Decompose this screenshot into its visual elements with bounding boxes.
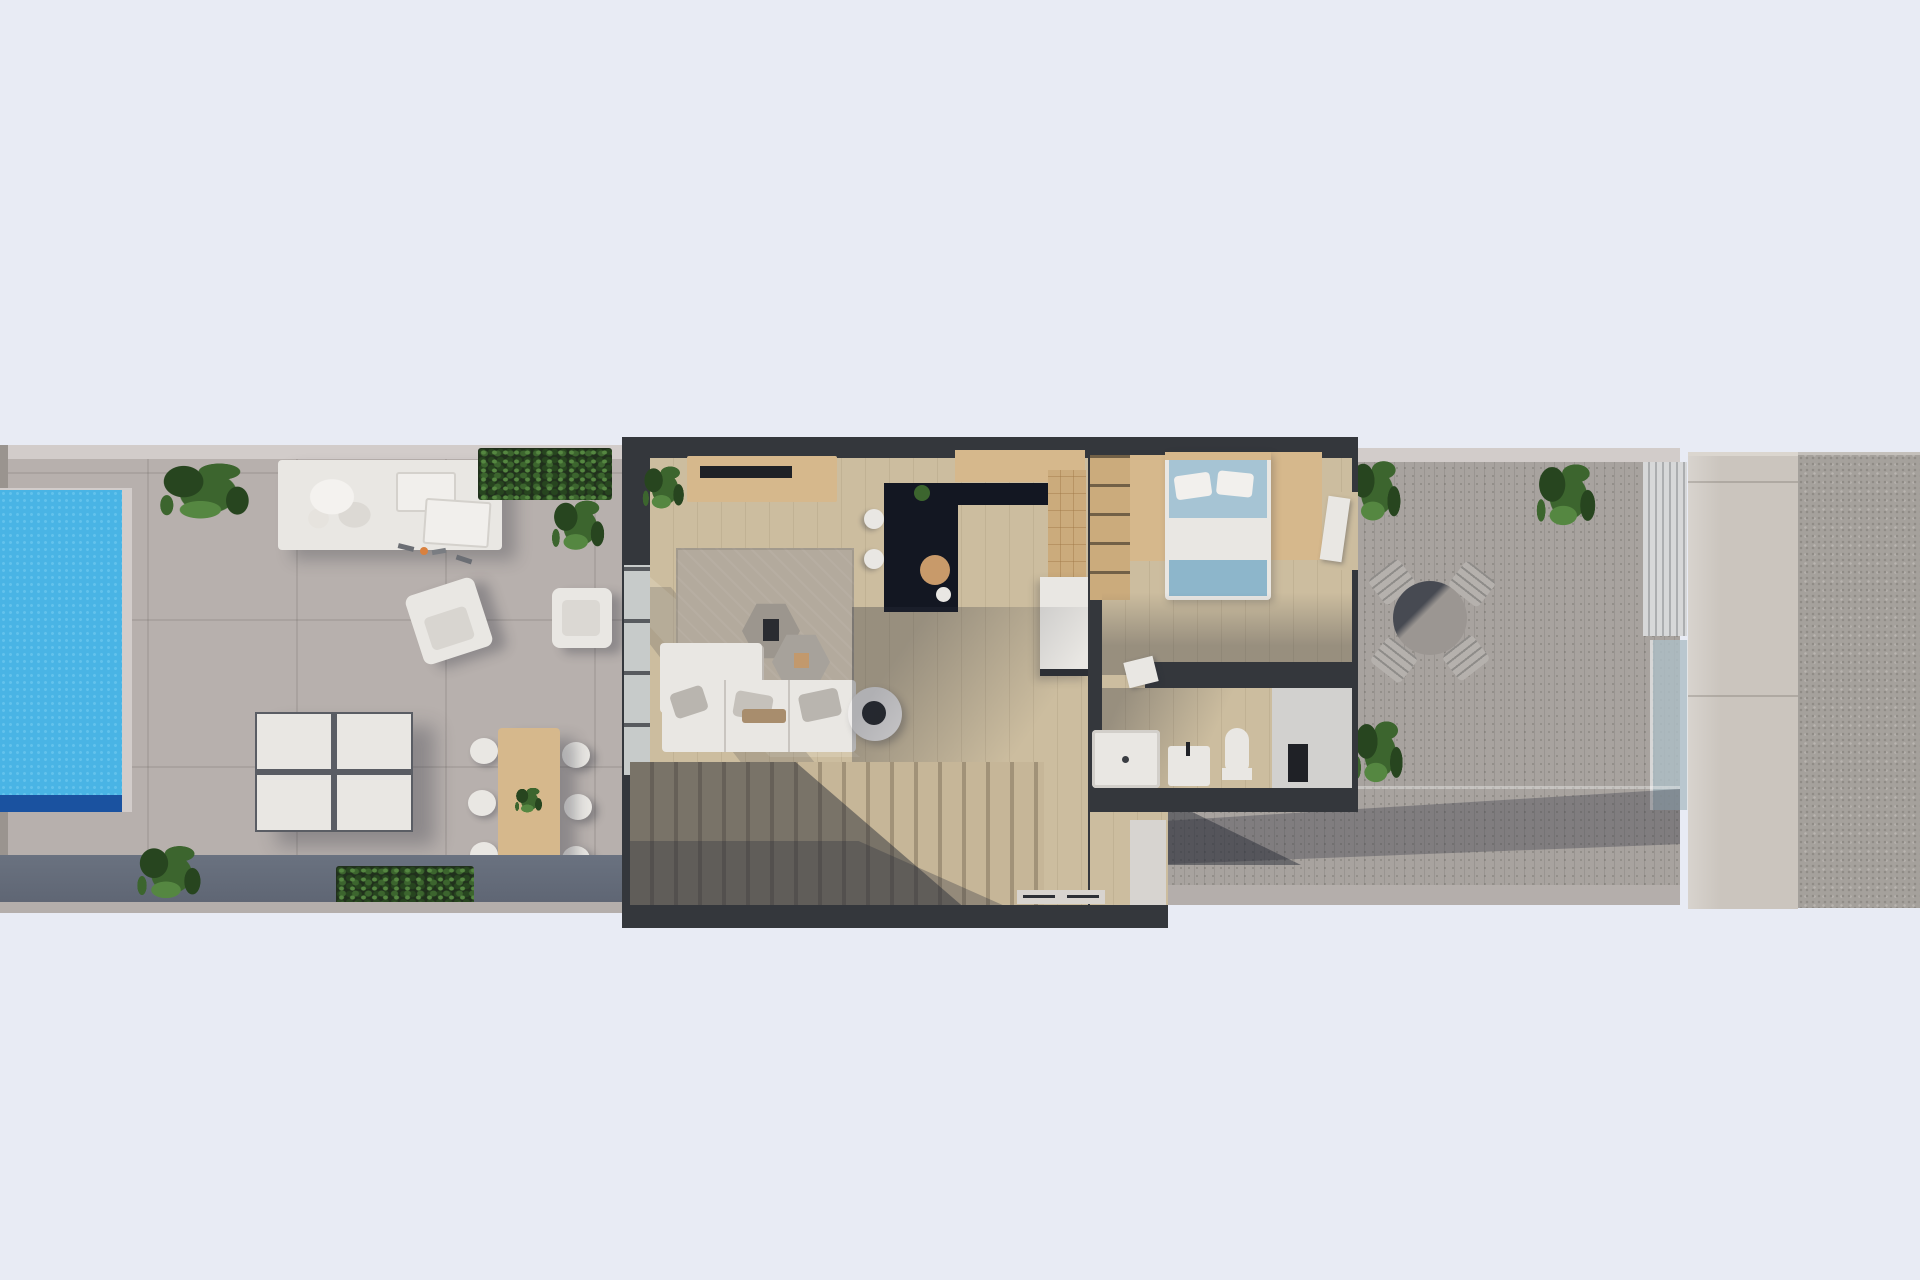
terrace-plant-2	[130, 838, 210, 910]
house-main	[622, 437, 1168, 928]
potted-plant	[546, 493, 612, 561]
staircase	[630, 762, 1044, 905]
scatter-item-2	[432, 548, 447, 555]
kitchen-island	[884, 483, 958, 612]
bistro-table	[1393, 581, 1467, 655]
wardrobe-right	[1270, 452, 1322, 560]
glass-balustrade-lower	[1650, 640, 1690, 810]
bed-headboard	[1165, 452, 1271, 460]
sofa-throw	[742, 709, 786, 723]
lounger-2	[337, 714, 411, 769]
pool-deep-edge	[0, 795, 122, 812]
pool-terrace	[0, 445, 622, 913]
bed-pillow-1	[1174, 472, 1213, 501]
partition-wall	[1145, 662, 1352, 688]
gravel-strip	[1798, 452, 1920, 908]
dining-chair-4	[562, 742, 590, 768]
indoor-plant	[638, 460, 690, 518]
open-white-door	[1040, 577, 1088, 676]
outdoor-chair	[552, 588, 612, 648]
rear-terrace-curb	[1145, 885, 1680, 905]
daybed-cushion-2	[422, 498, 491, 548]
pool-water	[0, 490, 122, 795]
dining-chair-2	[468, 790, 496, 816]
utility-door	[1130, 820, 1166, 905]
side-table	[848, 687, 902, 741]
wardrobe-left	[1130, 455, 1166, 561]
bowl	[936, 587, 951, 602]
stone-paving	[1688, 452, 1798, 909]
lounger-1	[257, 714, 331, 769]
glass-balustrade-upper	[1643, 462, 1687, 636]
wall-bottom	[622, 905, 1168, 928]
swimming-pool	[0, 488, 132, 812]
coffee-table-item	[763, 619, 779, 641]
windowsill	[1017, 890, 1105, 904]
slate-boundary-wall	[0, 855, 622, 902]
bed-foot-runner	[1169, 560, 1267, 596]
stairs-shadow	[630, 762, 1044, 905]
floorplan-render	[0, 0, 1920, 1280]
sliding-glass-door	[624, 565, 650, 775]
bathroom	[1102, 688, 1352, 788]
daybed	[278, 460, 502, 550]
sideboard	[687, 456, 837, 502]
corner-sofa	[658, 643, 890, 753]
outdoor-chair-seat	[562, 600, 600, 636]
towel-stand	[1288, 744, 1308, 782]
shower-tray	[1092, 730, 1160, 788]
scatter-item-3	[456, 555, 473, 565]
island-plant	[914, 485, 930, 501]
kitchen-backsplash	[1048, 470, 1086, 578]
bar-stool-2	[864, 549, 884, 569]
scatter-item-4	[420, 547, 428, 555]
bathroom-gray-floor	[1272, 688, 1352, 788]
wall-top	[622, 437, 1168, 458]
sun-loungers	[255, 712, 413, 832]
table-centerpiece	[512, 784, 546, 818]
daybed-blanket	[296, 468, 386, 540]
armchair-seat	[423, 605, 475, 651]
side-table-item	[862, 701, 886, 725]
vanity-basin	[1168, 746, 1210, 786]
terrace-rail-line	[1340, 786, 1680, 789]
bedroom-wing	[1088, 437, 1358, 812]
rear-plant-2	[1530, 455, 1604, 539]
double-bed	[1165, 452, 1271, 600]
bed-pillow-2	[1216, 470, 1254, 498]
toilet	[1222, 728, 1252, 780]
terrace-curb	[0, 902, 622, 913]
toilet-bowl	[1225, 728, 1249, 770]
vanity-tap	[1186, 742, 1190, 756]
outdoor-armchair	[404, 576, 495, 667]
lounger-4	[337, 775, 411, 830]
serving-board	[920, 555, 950, 585]
terrace-plant-1	[150, 455, 262, 531]
stairs-shadow-2	[630, 841, 1044, 905]
dining-chair-5	[564, 794, 592, 820]
shelving-unit	[1090, 455, 1130, 600]
tv	[700, 466, 792, 478]
bar-stool-1	[864, 509, 884, 529]
lounger-3	[257, 775, 331, 830]
shower-drain	[1122, 756, 1129, 763]
dining-chair-1	[470, 738, 498, 764]
